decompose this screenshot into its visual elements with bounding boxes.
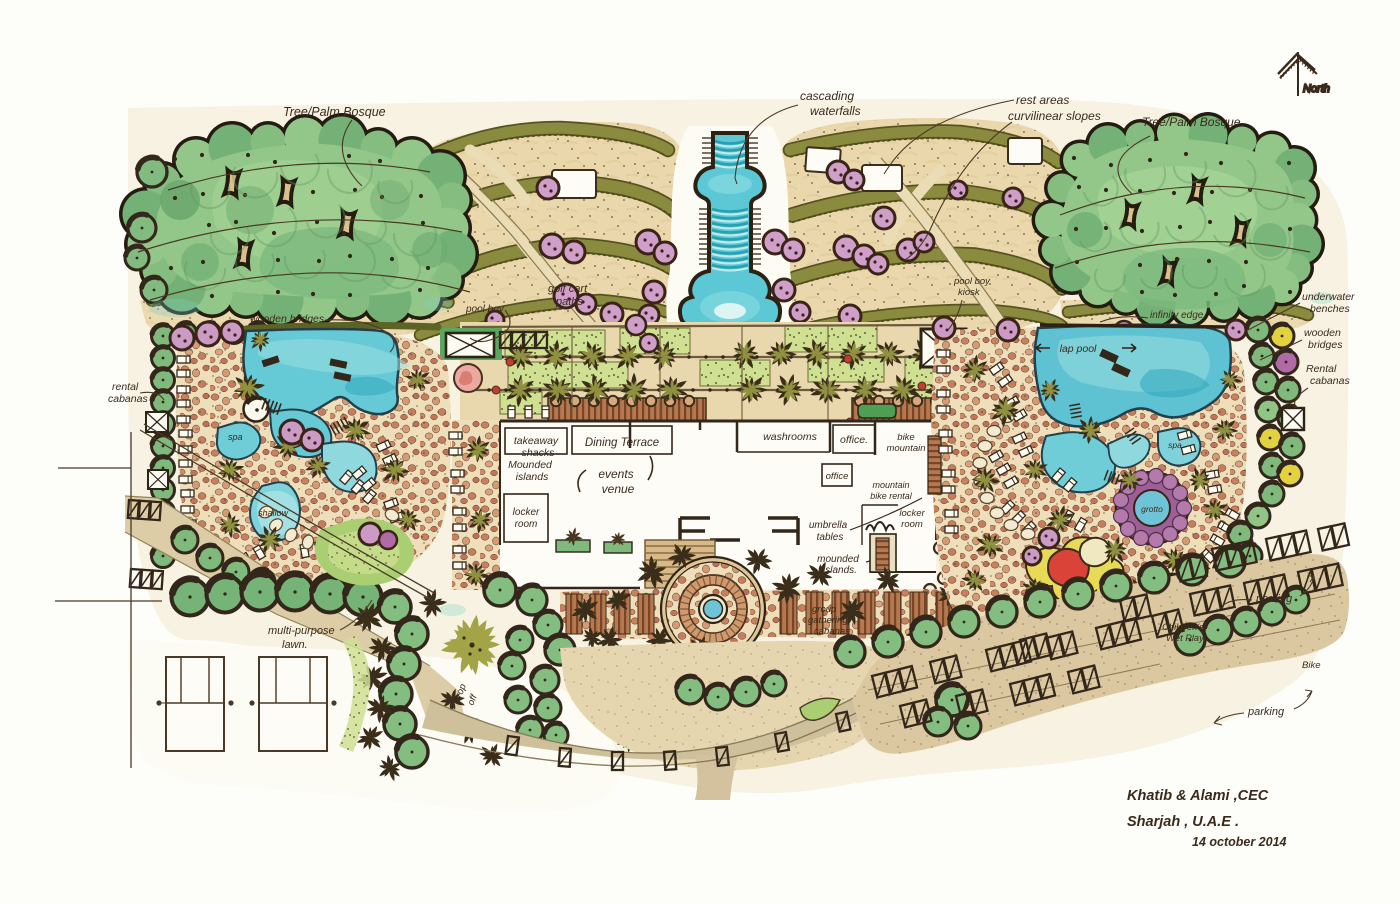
svg-text:Children's: Children's bbox=[1162, 622, 1204, 633]
svg-text:locker: locker bbox=[513, 507, 540, 518]
svg-text:Tree/Palm Bosque: Tree/Palm Bosque bbox=[283, 105, 386, 119]
svg-text:office: office bbox=[826, 471, 849, 482]
svg-text:Khatib & Alami ,CEC: Khatib & Alami ,CEC bbox=[1127, 788, 1269, 804]
svg-text:mountain: mountain bbox=[886, 443, 925, 454]
svg-text:umbrella: umbrella bbox=[809, 520, 848, 531]
svg-text:waterfalls: waterfalls bbox=[810, 104, 861, 118]
svg-text:islands: islands bbox=[516, 471, 549, 483]
svg-text:office.: office. bbox=[840, 434, 868, 446]
svg-text:room: room bbox=[901, 519, 923, 530]
svg-text:underwater: underwater bbox=[1302, 291, 1355, 303]
svg-text:mountain: mountain bbox=[872, 480, 909, 490]
svg-text:spa: spa bbox=[228, 432, 243, 442]
svg-text:parking: parking bbox=[1255, 593, 1293, 605]
svg-text:cascading: cascading bbox=[800, 89, 854, 103]
svg-text:14 october 2014: 14 october 2014 bbox=[1192, 835, 1287, 849]
svg-text:Sharjah , U.A.E .: Sharjah , U.A.E . bbox=[1127, 814, 1239, 830]
svg-text:rental: rental bbox=[112, 381, 139, 393]
svg-text:Bike: Bike bbox=[1302, 660, 1320, 671]
svg-text:islands.: islands. bbox=[823, 565, 857, 576]
svg-text:mounded: mounded bbox=[817, 554, 859, 565]
svg-text:benches: benches bbox=[1310, 303, 1350, 315]
svg-text:events: events bbox=[598, 467, 633, 481]
svg-text:wooden: wooden bbox=[1304, 327, 1341, 339]
svg-text:multi-purpose: multi-purpose bbox=[268, 625, 335, 637]
svg-text:kiosk: kiosk bbox=[958, 287, 981, 298]
svg-text:cabanas: cabanas bbox=[108, 393, 148, 405]
svg-text:Mounded: Mounded bbox=[508, 459, 553, 471]
svg-text:tables: tables bbox=[817, 532, 844, 543]
svg-text:venue: venue bbox=[602, 482, 635, 496]
svg-text:group: group bbox=[812, 604, 836, 615]
svg-text:locker: locker bbox=[899, 508, 925, 519]
svg-text:parking: parking bbox=[1247, 706, 1285, 718]
svg-text:shacks: shacks bbox=[522, 447, 555, 459]
svg-text:spa: spa bbox=[1168, 440, 1182, 450]
svg-text:wooden bridges: wooden bridges bbox=[250, 313, 325, 325]
svg-text:curvilinear slopes: curvilinear slopes bbox=[1008, 109, 1101, 123]
svg-text:pool boy: pool boy bbox=[465, 304, 505, 315]
svg-text:takeaway: takeaway bbox=[514, 435, 559, 447]
svg-text:bridges: bridges bbox=[1308, 339, 1343, 351]
svg-text:paths: paths bbox=[555, 296, 583, 308]
svg-text:Dining Terrace: Dining Terrace bbox=[585, 437, 659, 449]
svg-text:infinity edge: infinity edge bbox=[1150, 310, 1204, 321]
svg-text:rest areas: rest areas bbox=[1016, 93, 1069, 107]
svg-text:Rental: Rental bbox=[1306, 363, 1337, 375]
svg-text:bike rental: bike rental bbox=[870, 491, 913, 501]
svg-text:room: room bbox=[515, 519, 538, 530]
svg-text:bike: bike bbox=[897, 432, 914, 443]
svg-text:grotto: grotto bbox=[1141, 504, 1163, 514]
svg-text:lap pool: lap pool bbox=[1060, 343, 1097, 355]
svg-text:golf cart: golf cart bbox=[548, 283, 588, 295]
svg-text:Wet Play: Wet Play bbox=[1166, 633, 1205, 644]
svg-text:lawn.: lawn. bbox=[282, 639, 308, 651]
svg-text:pool boy: pool boy bbox=[953, 276, 991, 287]
svg-text:gathering: gathering bbox=[808, 615, 848, 626]
svg-text:North: North bbox=[1303, 83, 1330, 95]
svg-text:Tree/Palm Bosque.: Tree/Palm Bosque. bbox=[1142, 115, 1244, 129]
svg-text:washrooms: washrooms bbox=[763, 431, 817, 443]
svg-text:cabanas: cabanas bbox=[1310, 375, 1350, 387]
